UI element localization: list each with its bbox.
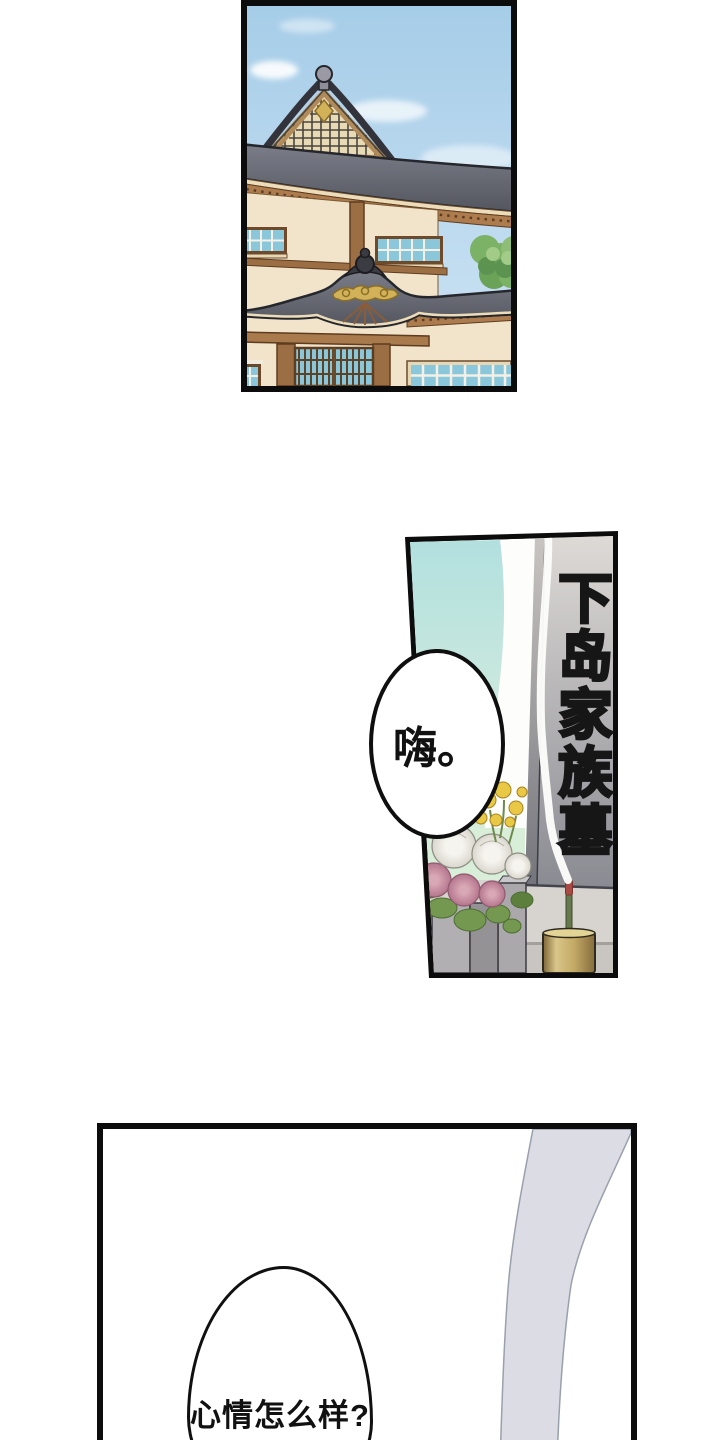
speech-bubble-hi: 嗨。	[369, 649, 505, 839]
lower-window-right	[407, 361, 511, 386]
grave-inscription: 下岛家族墓	[548, 560, 612, 870]
finial-knob	[316, 66, 332, 82]
upper-window-left	[241, 227, 287, 258]
entrance-doors	[295, 348, 373, 386]
upper-window-right	[375, 236, 443, 268]
panel-conversation: 心情怎么样?	[97, 1123, 637, 1440]
incense-holder	[543, 929, 595, 974]
porch-post-right	[373, 344, 390, 386]
panel-temple	[241, 0, 517, 392]
speech-text-question: 心情怎么样?	[190, 1390, 370, 1435]
sleeve-path	[500, 1129, 631, 1440]
speech-text-hi: 嗨。	[393, 712, 481, 776]
comic-page: 下岛家族墓 嗨。 心情怎么样?	[0, 0, 720, 1440]
porch-post-left	[277, 344, 295, 386]
